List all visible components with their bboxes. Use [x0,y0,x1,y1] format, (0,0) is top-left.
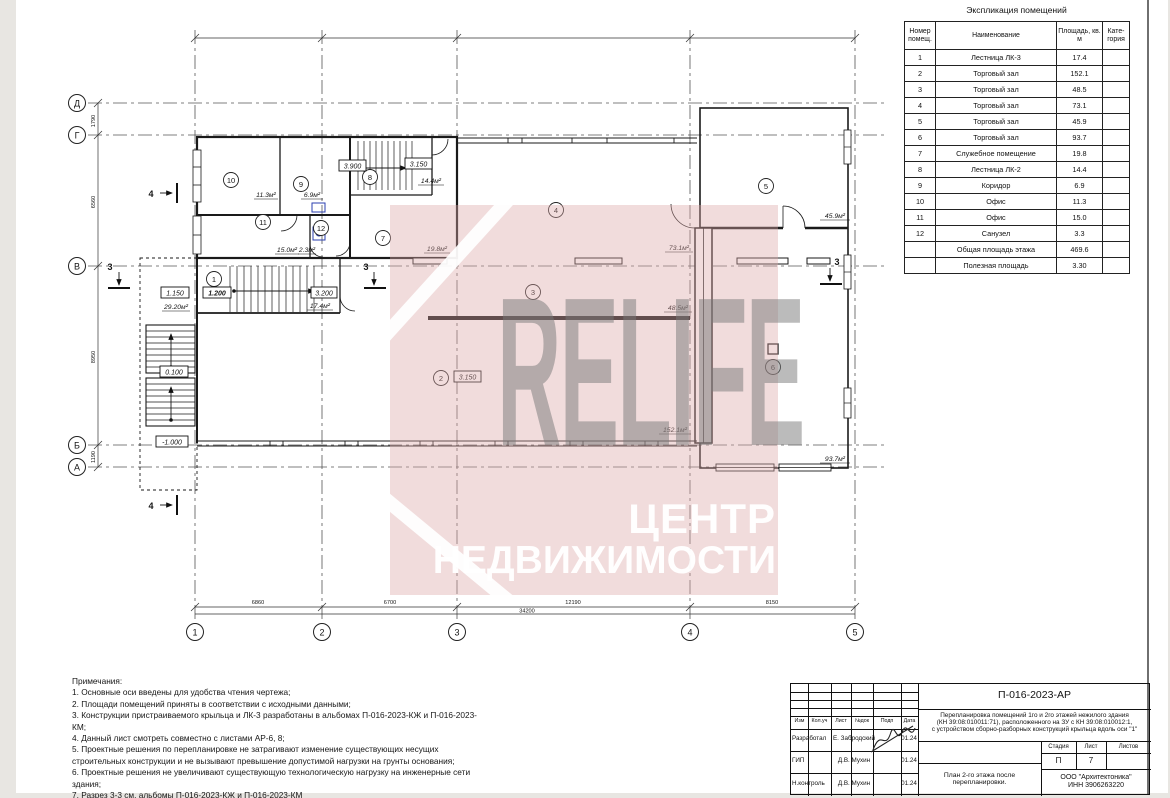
svg-text:4: 4 [148,501,153,511]
wall-cavity-vertical [671,204,712,443]
walls-right-block [700,108,851,471]
divider [791,716,918,717]
svg-text:9: 9 [299,180,303,189]
svg-text:2: 2 [439,374,443,383]
axis-grid-lines [88,30,886,622]
explication-table: Экспликация помещений Номер помещ. Наиме… [904,5,1129,274]
axis-column-bubbles [187,624,864,641]
staff-date: 01.24 [900,781,918,788]
svg-text:11.3м²: 11.3м² [256,192,276,199]
axis-row-bubbles [69,95,86,476]
room-number-labels: 1 2 3 4 5 6 7 8 9 10 11 12 [212,173,775,383]
column-symbol [768,344,778,354]
svg-text:6.9м²: 6.9м² [304,192,321,199]
notes-block: Примечания: 1. Основные оси введены для … [72,676,484,798]
explication-title: Экспликация помещений [904,5,1129,15]
note-item: 5. Проектные решения по перепланировке н… [72,744,484,767]
svg-text:6700: 6700 [384,600,396,606]
sheets-header: Листов [1106,744,1151,751]
sheet-caption: План 2-го этажа после перепланировки. [920,772,1039,787]
svg-text:6: 6 [771,363,775,372]
svg-text:3.150: 3.150 [410,162,428,169]
table-row: 8Лестница ЛК-214.4 [905,162,1130,178]
svg-text:3.150: 3.150 [459,375,477,382]
table-row: 1Лестница ЛК-317.4 [905,50,1130,66]
axis-row-labels: Д Г В Б А [74,99,80,473]
staff-role: Разработал [792,736,834,743]
table-header-row: Номер помещ. Наименование Площадь, кв. м… [905,22,1130,50]
document-code: П-016-2023-АР [918,690,1151,702]
section-mark-labels: 3 3 3 4 4 [107,189,839,511]
svg-text:8950: 8950 [91,351,97,363]
table-row: 6Торговый зал93.7 [905,130,1130,146]
notes-title: Примечания: [72,676,484,687]
col-header-category: Кате-гория [1103,22,1130,50]
note-item: 3. Конструкции пристраиваемого крыльца и… [72,710,484,733]
svg-text:17.4м²: 17.4м² [310,303,331,310]
svg-text:29.20м²: 29.20м² [163,304,189,311]
svg-text:3: 3 [531,288,535,297]
svg-text:Д: Д [74,99,80,109]
table-row: 12Санузел3.3 [905,226,1130,242]
divider [918,741,1151,742]
svg-text:В: В [74,262,80,272]
divider [791,692,918,693]
table-row: 7Служебное помещение19.8 [905,146,1130,162]
title-block: Изм Кол.уч Лист №док Подп Дата Разработа… [790,683,1150,795]
explication-grid: Номер помещ. Наименование Площадь, кв. м… [904,21,1130,274]
stair-lk3-room1 [197,258,355,443]
svg-text:1.150: 1.150 [166,291,184,298]
divider [791,773,918,774]
staff-name: Д.В. Мухин [831,758,877,765]
svg-text:2: 2 [319,628,324,638]
svg-text:4: 4 [148,189,153,199]
svg-text:3: 3 [834,257,839,267]
svg-text:12190: 12190 [565,600,581,606]
axis-column-labels: 1 2 3 4 5 [192,628,857,638]
stage-header: Стадия [1041,744,1076,751]
note-item: 1. Основные оси введены для удобства чте… [72,687,484,698]
divider [1041,769,1151,770]
svg-text:10: 10 [227,176,235,185]
svg-text:45.9м²: 45.9м² [825,213,846,220]
svg-text:8: 8 [368,173,372,182]
svg-text:-1.000: -1.000 [162,440,182,447]
svg-text:12: 12 [317,224,325,233]
stage-value: П [1041,757,1076,766]
table-total-row: Общая площадь этажа469.6 [905,242,1130,258]
col-header-number: Номер помещ. [905,22,936,50]
svg-text:11: 11 [259,218,267,227]
svg-text:4: 4 [554,206,558,215]
svg-text:3: 3 [454,628,459,638]
svg-text:А: А [74,463,80,473]
svg-text:7: 7 [381,234,385,243]
note-item: 7. Разрез 3-3 см. альбомы П-016-2023-КЖ … [72,790,484,798]
svg-text:3: 3 [363,262,368,272]
desc-line: Перепланировка помещений 1го и 2го этаже… [921,712,1148,719]
table-row: 5Торговый зал45.9 [905,114,1130,130]
note-item: 6. Проектные решения не увеличивают суще… [72,767,484,790]
staff-role: ГИП [792,758,834,765]
svg-text:2.3м²: 2.3м² [298,247,316,254]
col-header-name: Наименование [936,22,1057,50]
svg-text:Б: Б [74,441,80,451]
svg-text:34200: 34200 [519,609,535,615]
table-row: 11Офис15.0 [905,210,1130,226]
svg-text:14.4м²: 14.4м² [421,178,442,185]
divider [791,708,918,709]
col-list: Лист [831,719,851,725]
table-row: 3Торговый зал48.5 [905,82,1130,98]
svg-text:Г: Г [75,131,80,141]
note-item: 2. Площади помещений приняты в соответст… [72,699,484,710]
svg-text:3: 3 [107,262,112,272]
staff-role: Н.контроль [792,781,834,788]
organization: ООО "Архитектоника" ИНН 3906263220 [1041,774,1151,789]
walls-main-hall-top [457,138,697,143]
staff-date: 01.24 [900,758,918,765]
svg-text:3.900: 3.900 [344,164,362,171]
table-total-row: Полезная площадь3.30 [905,258,1130,274]
svg-text:48.5м²: 48.5м² [668,305,689,312]
divider [918,763,1041,764]
divider [791,700,918,701]
left-dimension-labels: 1790 6560 8950 1190 [91,115,97,463]
divider [1041,753,1151,754]
note-item: 4. Данный лист смотреть совместно с лист… [72,733,484,744]
drawing-sheet: 1790 6560 8950 1190 6860 6700 12190 8150… [0,0,1170,798]
svg-text:5: 5 [764,182,768,191]
staff-name: Д.В. Мухин [831,781,877,788]
svg-text:6560: 6560 [91,196,97,208]
svg-text:4: 4 [687,628,692,638]
svg-text:1: 1 [192,628,197,638]
svg-text:3.200: 3.200 [315,291,333,298]
signature [869,722,917,756]
project-description: Перепланировка помещений 1го и 2го этаже… [921,712,1148,733]
svg-text:152.1м²: 152.1м² [663,427,688,434]
svg-text:19.8м²: 19.8м² [427,246,448,253]
svg-text:6860: 6860 [252,600,264,606]
sheet-header: Лист [1076,744,1106,751]
partitions-axis-B [413,258,830,264]
svg-text:1790: 1790 [91,115,97,127]
svg-text:0.100: 0.100 [165,370,183,377]
col-izm: Изм [791,719,808,725]
svg-text:73.1м²: 73.1м² [669,245,690,252]
org-line: ООО "Архитектоника" [1041,774,1151,782]
left-dimension-line [94,99,102,471]
svg-text:93.7м²: 93.7м² [825,456,846,463]
table-row: 4Торговый зал73.1 [905,98,1130,114]
divider [918,709,1151,710]
table-row: 9Коридор6.9 [905,178,1130,194]
svg-text:1: 1 [212,275,216,284]
sheet-value: 7 [1076,757,1106,766]
table-row: 2Торговый зал152.1 [905,66,1130,82]
svg-text:1190: 1190 [91,451,97,463]
top-dimension-line [191,34,859,42]
col-koluch: Кол.уч [808,719,831,725]
org-line: ИНН 3906263220 [1041,782,1151,790]
svg-text:1.200: 1.200 [208,291,226,298]
table-row: 10Офис11.3 [905,194,1130,210]
desc-line: с устройством сборно-разборных конструкц… [921,726,1148,733]
svg-text:15.0м²: 15.0м² [277,247,298,254]
col-header-area: Площадь, кв. м [1057,22,1103,50]
svg-text:8150: 8150 [766,600,778,606]
svg-text:5: 5 [852,628,857,638]
